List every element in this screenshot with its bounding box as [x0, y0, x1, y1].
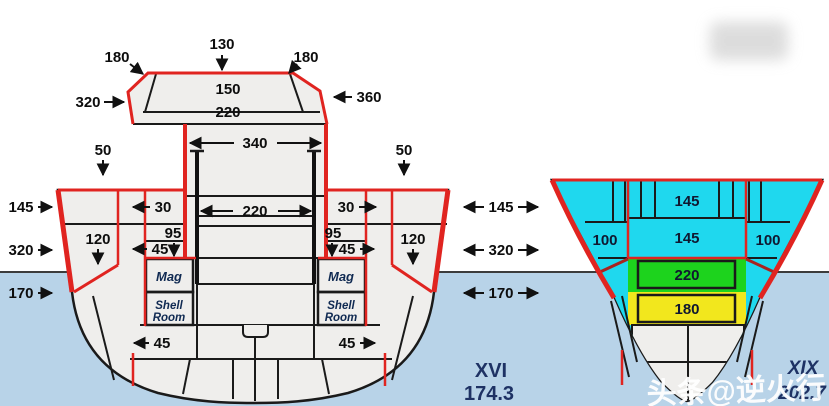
dim-mid-left: 95 — [165, 225, 182, 242]
left-ship-value: 174.3 — [464, 383, 514, 405]
dim-upper-belt-right: 120 — [400, 231, 425, 248]
dim-right-lower: 180 — [674, 301, 699, 318]
dim-armor-deck: 220 — [242, 203, 267, 220]
blurred-logo-smudge — [710, 22, 788, 60]
dim-right-side-right: 100 — [755, 232, 780, 249]
dim-bulkhead-right: 45 — [339, 241, 356, 258]
keel-notch — [243, 325, 268, 337]
dim-tower-corner-left: 180 — [104, 49, 129, 66]
dim-mid-right: 95 — [325, 225, 342, 242]
mag-left-label: Mag — [156, 269, 182, 284]
dim-splinter-right: 30 — [338, 199, 355, 216]
dim-right-deck-upper: 145 — [674, 193, 699, 210]
mag-right-label: Mag — [328, 269, 354, 284]
dim-tower-side-left: 320 — [75, 94, 100, 111]
dim-bulkhead-left: 45 — [152, 241, 169, 258]
dim-belt-lower-left: 170 — [8, 285, 33, 302]
shell-room-right-line1: Shell — [327, 300, 355, 312]
diagram-canvas: Mag Mag Shell Room Shell Room — [0, 0, 829, 406]
dim-tower-corner-right: 180 — [293, 49, 318, 66]
dim-right-citadel: 220 — [674, 267, 699, 284]
dim-center-belt-lower: 170 — [488, 285, 513, 302]
dim-right-deck-main: 145 — [674, 230, 699, 247]
dim-belt-main-left: 320 — [8, 242, 33, 259]
dim-center-belt-main: 320 — [488, 242, 513, 259]
dim-barbette: 340 — [242, 135, 267, 152]
dim-upper-belt-left: 120 — [85, 231, 110, 248]
dim-tower-side-right: 360 — [356, 89, 381, 106]
shell-room-right-line2: Room — [325, 312, 358, 324]
dim-bottom-left: 45 — [154, 335, 171, 352]
dim-splinter-left: 30 — [155, 199, 172, 216]
armor-scheme-diagram: Mag Mag Shell Room Shell Room — [0, 0, 829, 406]
dim-right-side-left: 100 — [592, 232, 617, 249]
left-ship-name: XVI — [475, 360, 507, 382]
shell-room-left-line1: Shell — [155, 300, 183, 312]
shell-room-left-line2: Room — [153, 312, 186, 324]
dim-bottom-right: 45 — [339, 335, 356, 352]
dim-belt-top-left: 145 — [8, 199, 33, 216]
dim-tower-top: 130 — [209, 36, 234, 53]
dim-tower-deck: 220 — [215, 104, 240, 121]
dim-deck-edge-left: 50 — [95, 142, 112, 159]
dim-tower-roof: 150 — [215, 81, 240, 98]
dim-center-belt-top: 145 — [488, 199, 513, 216]
dim-deck-edge-right: 50 — [396, 142, 413, 159]
